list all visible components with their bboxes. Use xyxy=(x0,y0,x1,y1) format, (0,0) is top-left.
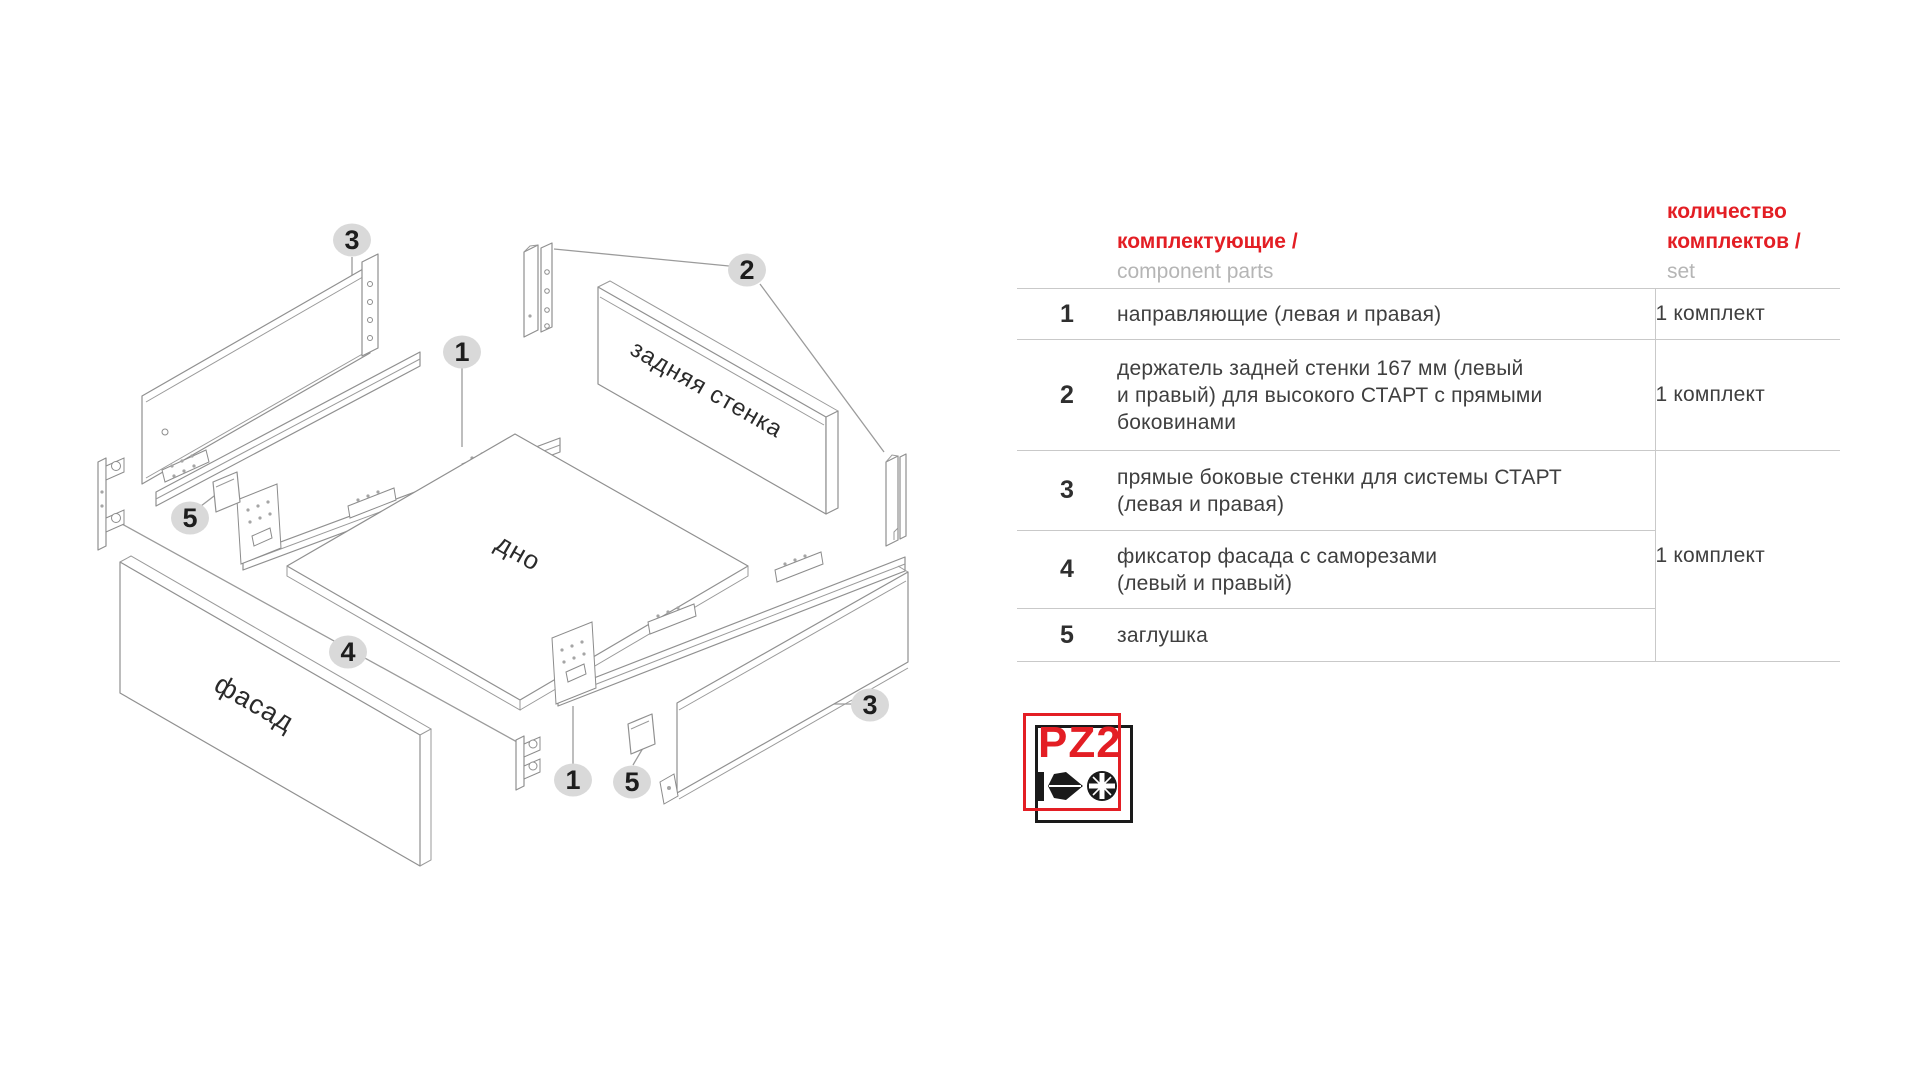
table-row: 1 направляющие (левая и правая) 1 компле… xyxy=(1017,289,1840,340)
qty-header-ru: количество комплектов / xyxy=(1667,197,1801,257)
row-number: 4 xyxy=(1017,531,1117,609)
logo-text: PZ2 xyxy=(1038,718,1122,768)
merged-qty-cell: 1 комплект xyxy=(1655,451,1840,662)
qty-header-en: set xyxy=(1667,257,1801,287)
table-row: 2 держатель задней стенки 167 мм (левый … xyxy=(1017,340,1840,451)
callout-rail-bottom: 1 xyxy=(565,765,580,795)
back-wall-holder-right xyxy=(886,454,906,546)
row-part-name: держатель задней стенки 167 мм (левый и … xyxy=(1117,340,1655,451)
row-qty: 1 комплект xyxy=(1655,289,1840,340)
parts-header-en: component parts xyxy=(1117,257,1298,287)
row-number: 3 xyxy=(1017,451,1117,531)
side-wall-left xyxy=(142,254,420,506)
row-part-name: прямые боковые стенки для системы СТАРТ … xyxy=(1117,451,1655,531)
row-part-name: фиксатор фасада с саморезами (левый и пр… xyxy=(1117,531,1655,609)
callout-side-left: 3 xyxy=(344,225,359,255)
facade-fixator-bottom xyxy=(516,736,540,790)
qty-column-header: количество комплектов / set xyxy=(1667,197,1801,287)
back-wall-holder-top xyxy=(524,243,552,337)
table-row: 3 прямые боковые стенки для системы СТАР… xyxy=(1017,451,1840,531)
callout-side-right: 3 xyxy=(862,690,877,720)
row-part-name: заглушка xyxy=(1117,609,1655,662)
bottom-panel: дно xyxy=(287,434,748,710)
row-part-name: направляющие (левая и правая) xyxy=(1117,289,1655,340)
callout-rail-top: 1 xyxy=(454,337,469,367)
parts-header-ru: комплектующие / xyxy=(1117,227,1298,257)
row-number: 2 xyxy=(1017,340,1117,451)
assembly-instruction-page: { "table": { "header": { "parts_ru": "ко… xyxy=(0,0,1920,1080)
callout-holders: 2 xyxy=(739,255,754,285)
callout-plug-right: 5 xyxy=(624,767,639,797)
row-number: 5 xyxy=(1017,609,1117,662)
plug-right xyxy=(628,714,655,754)
component-parts-table: 1 направляющие (левая и правая) 1 компле… xyxy=(1017,288,1840,662)
pz2-logo: PZ2 xyxy=(1023,713,1139,829)
callout-plug-left: 5 xyxy=(182,503,197,533)
facade-fixator-left xyxy=(98,458,124,550)
callout-front-fix: 4 xyxy=(340,637,355,667)
pozidriv-screwdriver-icon xyxy=(1036,770,1128,804)
parts-column-header: комплектующие / component parts xyxy=(1117,227,1298,287)
back-wall-panel: задняя стенка xyxy=(598,281,838,514)
row-number: 1 xyxy=(1017,289,1117,340)
plug-left xyxy=(213,472,240,512)
row-qty: 1 комплект xyxy=(1655,340,1840,451)
side-wall-right xyxy=(660,566,908,804)
